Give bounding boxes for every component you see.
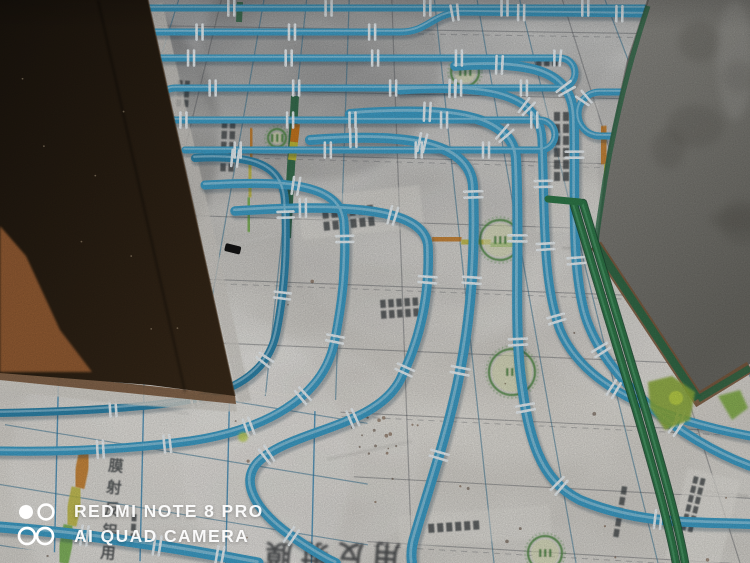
top-shading <box>0 0 750 30</box>
photo-canvas: 膜射反铝用膜射反用 <box>0 0 750 563</box>
watermark-line2: AI QUAD CAMERA <box>74 524 264 549</box>
underfloor-heating-photo: 膜射反铝用膜射反用 REDMI NOTE 8 PRO AI QUAD CAMER… <box>0 0 750 563</box>
camera-watermark: REDMI NOTE 8 PRO AI QUAD CAMERA <box>17 499 264 549</box>
watermark-line1: REDMI NOTE 8 PRO <box>74 499 264 524</box>
redmi-ai-camera-logo-icon <box>17 499 63 547</box>
film-grain <box>0 0 750 563</box>
